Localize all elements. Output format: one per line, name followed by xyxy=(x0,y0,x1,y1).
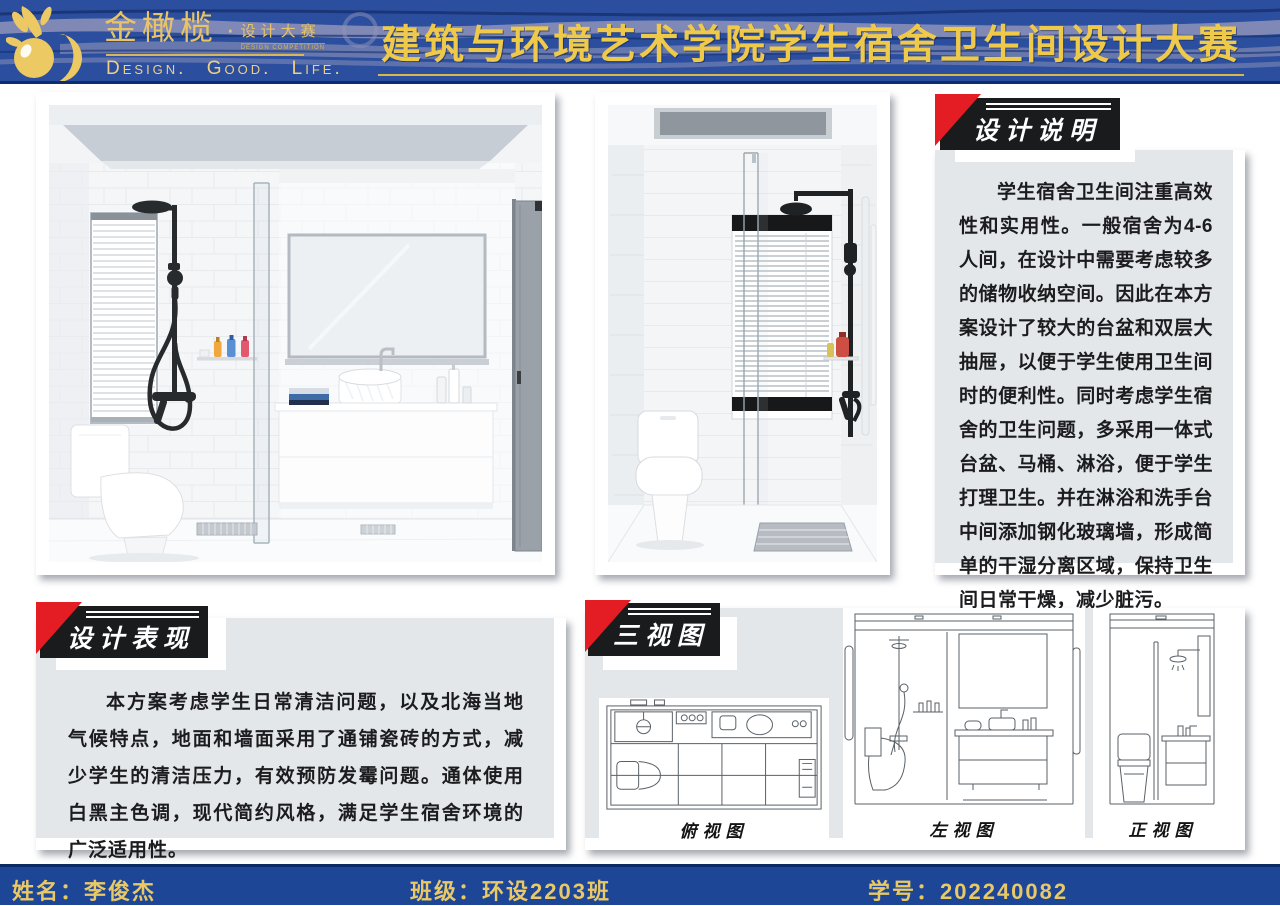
design-expression-panel: 本方案考虑学生日常清洁问题，以及北海当地气候特点，地面和墙面采用了通铺瓷砖的方式… xyxy=(36,602,566,850)
bathroom-render-shower xyxy=(608,105,877,562)
poster-page: 金橄榄 · 设计大赛 DESIGN COMPETITION Design. Go… xyxy=(0,0,1280,905)
logo-divider-line xyxy=(106,54,304,56)
brand-name: 金橄榄 xyxy=(104,10,218,46)
three-views-panel: 俯视图 xyxy=(585,602,1245,850)
student-name: 姓名：李俊杰 xyxy=(12,874,156,906)
glass-partition xyxy=(254,183,269,543)
top-view-drawing xyxy=(600,698,828,815)
window-blinds xyxy=(732,215,832,419)
front-view-card: 正视图 xyxy=(1093,608,1233,842)
bathroom-render-overview xyxy=(49,105,542,562)
student-class: 班级：环设2203班 xyxy=(410,874,611,906)
title-box-lines xyxy=(986,103,1111,110)
poster-footer: 姓名：李俊杰 班级：环设2203班 学号：202240082 xyxy=(0,864,1280,905)
render-main-bathroom-image xyxy=(36,92,555,575)
design-description-panel: 学生宿舍卫生间注重高效性和实用性。一般宿舍为4-6人间，在设计中需要考虑较多的储… xyxy=(935,92,1245,575)
brand-tagline: Design. Good. Life. xyxy=(106,58,354,80)
poster-header: 金橄榄 · 设计大赛 DESIGN COMPETITION Design. Go… xyxy=(0,0,1280,84)
brand-logo: 金橄榄 · 设计大赛 DESIGN COMPETITION Design. Go… xyxy=(4,2,364,82)
towels xyxy=(289,388,329,405)
ceiling-skylight xyxy=(608,105,877,145)
three-views-title: 三视图 xyxy=(602,616,720,652)
brand-separator-dot: · xyxy=(226,14,235,45)
poster-title: 建筑与环境艺术学院学生宿舍卫生间设计大赛 xyxy=(378,12,1244,76)
render-shower-room-image xyxy=(595,92,890,575)
subbrand-name: 设计大赛 xyxy=(241,20,325,41)
design-expression-title: 设计表现 xyxy=(54,619,208,655)
top-view-label: 俯视图 xyxy=(680,817,749,842)
front-view-label: 正视图 xyxy=(1129,816,1198,841)
student-id: 学号：202240082 xyxy=(868,874,1068,906)
subbrand-name-en: DESIGN COMPETITION xyxy=(241,43,325,51)
front-view-drawing xyxy=(1094,608,1232,814)
bathroom-door xyxy=(512,199,542,551)
olive-logo-icon xyxy=(6,4,102,82)
shower-mat-drain xyxy=(754,523,852,551)
title-box-lines xyxy=(628,608,711,615)
logo-text: 金橄榄 · 设计大赛 DESIGN COMPETITION Design. Go… xyxy=(104,10,354,80)
towel-rail xyxy=(862,197,876,435)
left-view-card: 左视图 xyxy=(843,608,1085,842)
top-view-card: 俯视图 xyxy=(599,698,829,842)
title-box-lines xyxy=(86,611,199,618)
vanity-mirror xyxy=(285,235,489,365)
vanity-cabinet xyxy=(275,403,497,509)
design-description-body: 学生宿舍卫生间注重高效性和实用性。一般宿舍为4-6人间，在设计中需要考虑较多的储… xyxy=(935,150,1245,575)
left-view-drawing xyxy=(843,608,1085,814)
design-description-title: 设计说明 xyxy=(954,111,1120,147)
left-view-label: 左视图 xyxy=(930,816,999,841)
design-description-text: 学生宿舍卫生间注重高效性和实用性。一般宿舍为4-6人间，在设计中需要考虑较多的储… xyxy=(935,150,1233,618)
